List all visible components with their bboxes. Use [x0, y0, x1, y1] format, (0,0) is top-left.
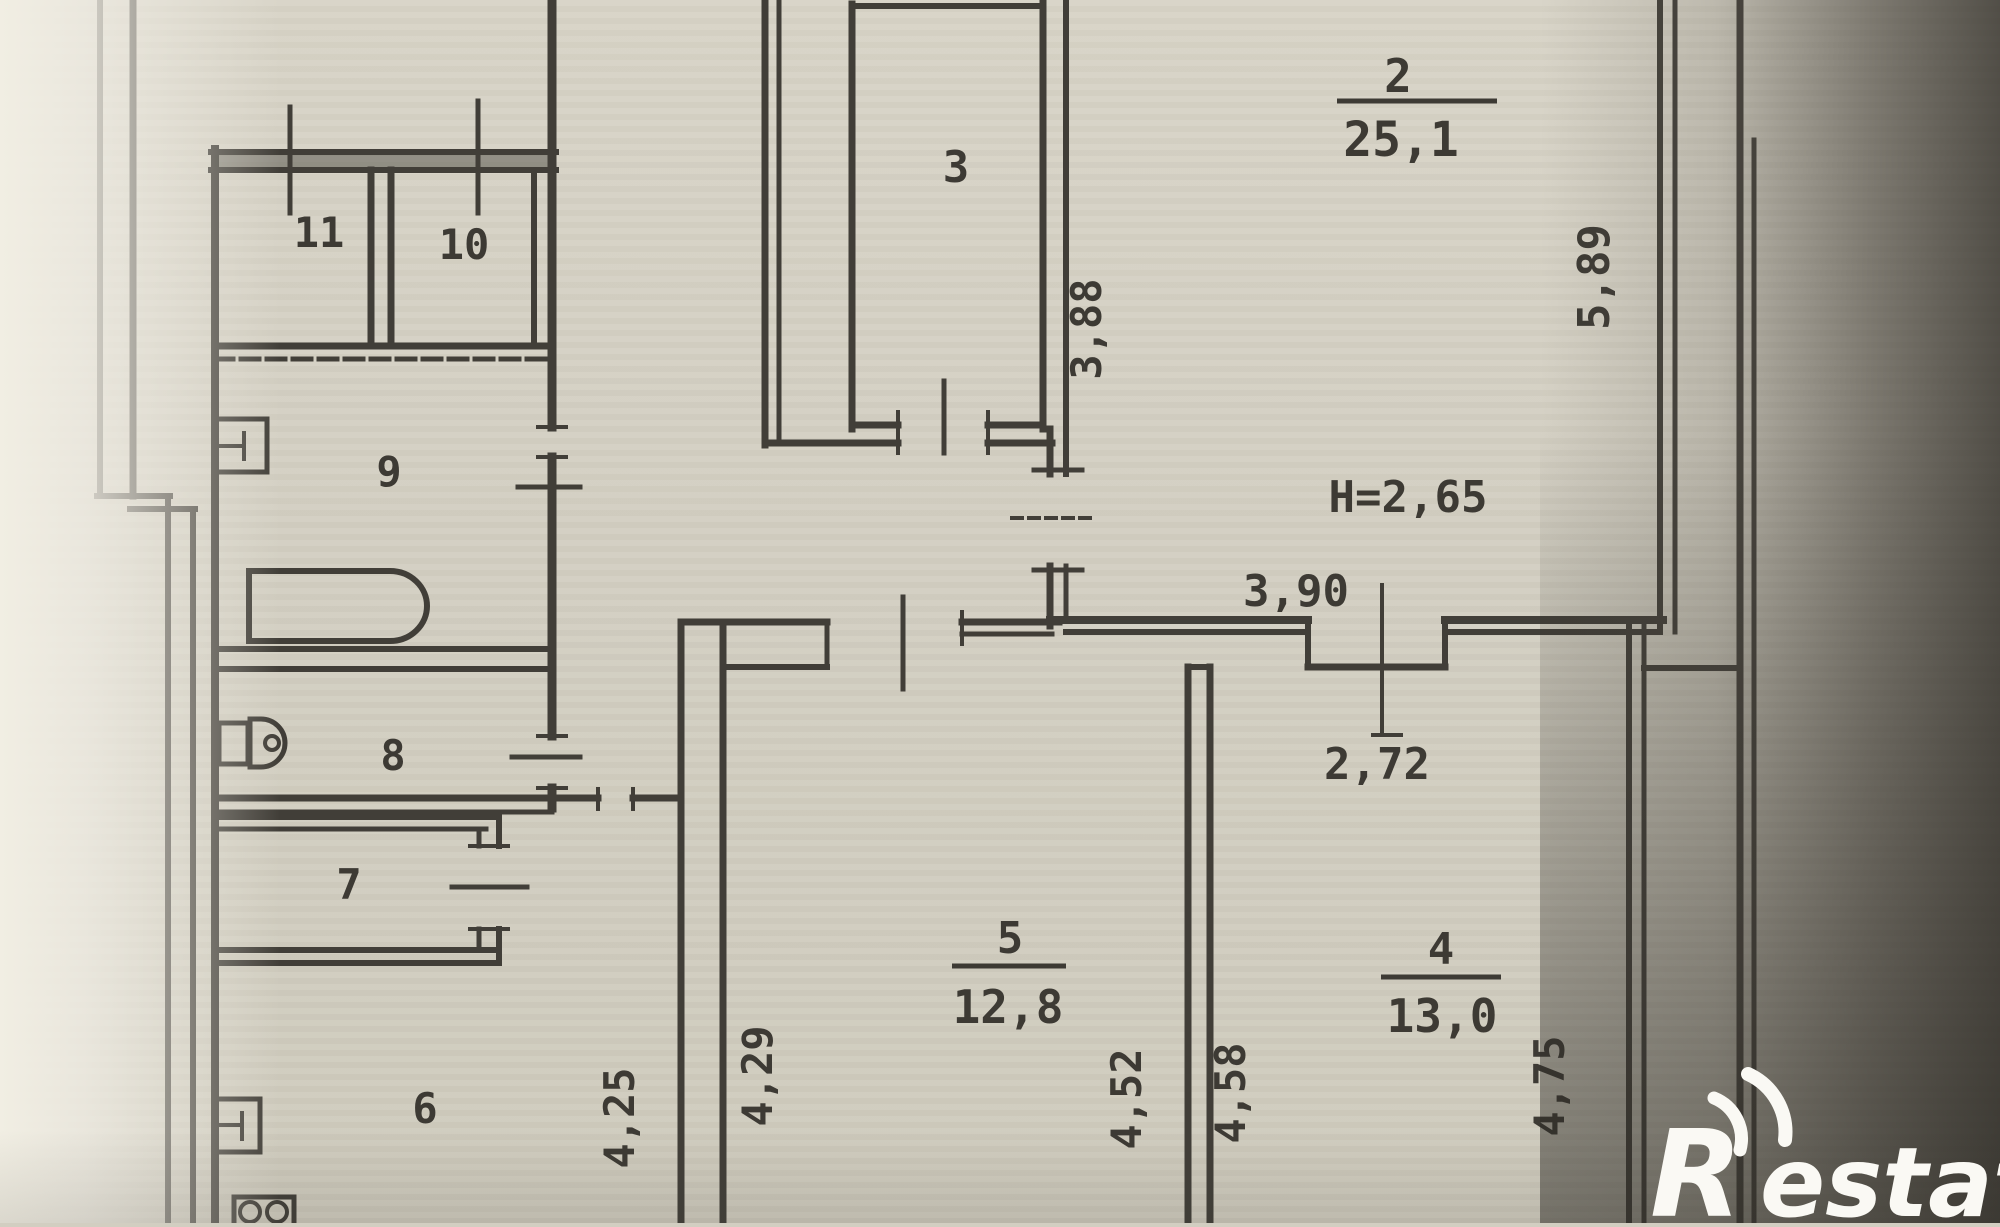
room5-number: 5: [997, 913, 1024, 964]
room4-number: 4: [1428, 924, 1455, 975]
room11-number: 11: [294, 208, 345, 257]
dim-4-29: 4,29: [733, 1025, 782, 1126]
paper-highlight-left: [0, 0, 280, 1223]
room10-number: 10: [439, 220, 490, 269]
ceiling-height: H=2,65: [1329, 472, 1488, 523]
room5-area: 12,8: [953, 980, 1064, 1034]
room6-number: 6: [412, 1084, 437, 1133]
photo-shadow-right: [1540, 0, 2000, 1223]
labels: 2 25,1 5,89 3 3,88 H=2,65 3,90 2,72 11 1…: [294, 49, 1620, 1169]
logo-text: estate: [1760, 1127, 2000, 1223]
dim-2-72: 2,72: [1324, 739, 1430, 790]
room2-area: 25,1: [1343, 112, 1459, 168]
logo-initial: R: [1650, 1106, 1742, 1223]
room3-number: 3: [943, 142, 970, 193]
room7-number: 7: [336, 860, 361, 909]
walls: [97, 0, 1754, 1223]
room9-number: 9: [376, 447, 401, 496]
room2-number: 2: [1384, 49, 1412, 103]
restate-watermark-logo: R estate: [1648, 1048, 2000, 1223]
room8-number: 8: [380, 731, 405, 780]
dim-3-90: 3,90: [1243, 566, 1349, 617]
dim-3-88: 3,88: [1062, 278, 1111, 379]
dim-4-58: 4,58: [1206, 1042, 1255, 1143]
scanned-floor-plan-photo: 2 25,1 5,89 3 3,88 H=2,65 3,90 2,72 11 1…: [0, 0, 2000, 1223]
room4-area: 13,0: [1387, 989, 1498, 1043]
